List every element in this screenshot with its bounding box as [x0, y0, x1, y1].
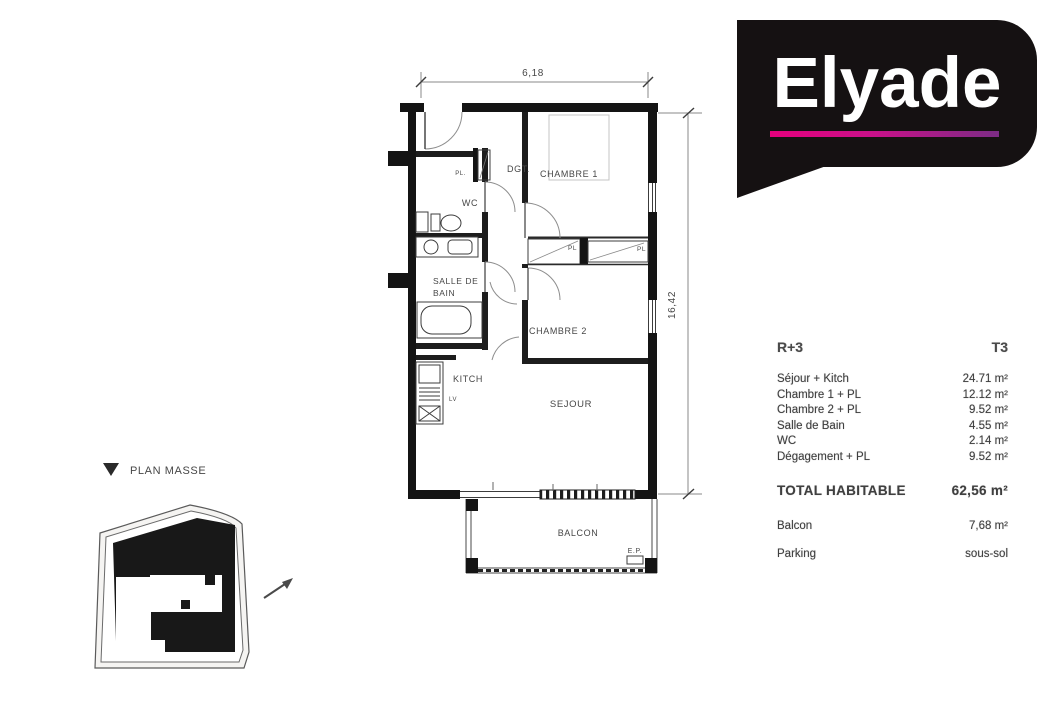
unit-type-label: T3	[992, 339, 1008, 355]
table-row: Chambre 2 + PL 9.52 m²	[777, 403, 1008, 419]
balcon-row: Balcon 7,68 m²	[777, 520, 1008, 532]
plan-masse-title: PLAN MASSE	[103, 463, 206, 477]
sejour-glass-door	[540, 490, 635, 499]
table-row: WC 2.14 m²	[777, 434, 1008, 450]
label-pl-right: PL	[637, 246, 646, 253]
summary-rows: Séjour + Kitch 24.71 m² Chambre 1 + PL 1…	[777, 372, 1008, 466]
room-label: Séjour + Kitch	[777, 372, 849, 388]
label-dgt: DGT.	[507, 164, 530, 174]
table-row: Salle de Bain 4.55 m²	[777, 419, 1008, 435]
label-chambre2: CHAMBRE 2	[529, 326, 587, 336]
sejour-window	[460, 492, 540, 498]
balcon-value: 7,68 m²	[969, 520, 1008, 532]
window-chambre1	[647, 183, 657, 212]
table-row: Chambre 1 + PL 12.12 m²	[777, 388, 1008, 404]
table-row: Dégagement + PL 9.52 m²	[777, 450, 1008, 466]
summary-header: R+3 T3	[777, 339, 1008, 355]
parking-value: sous-sol	[965, 548, 1008, 560]
label-wc: WC	[462, 198, 478, 208]
parking-label: Parking	[777, 548, 816, 560]
logo-underline	[770, 131, 999, 137]
room-label: Chambre 2 + PL	[777, 403, 861, 419]
window-chambre2	[647, 300, 657, 333]
room-label: Chambre 1 + PL	[777, 388, 861, 404]
door-leaves	[485, 182, 528, 300]
apartment-plan-page: 6,18 16,42 DGT. PL. CHAMBRE 1 WC SALLE D…	[0, 0, 1055, 702]
total-value: 62,56 m²	[952, 483, 1008, 498]
room-label: Dégagement + PL	[777, 450, 870, 466]
room-area: 12.12 m²	[963, 388, 1008, 404]
room-area: 4.55 m²	[969, 419, 1008, 435]
plan-masse-drawing	[95, 505, 249, 668]
label-ep: E.P.	[628, 548, 643, 555]
label-pl-entry: PL.	[455, 171, 466, 177]
room-area: 9.52 m²	[969, 450, 1008, 466]
kitchen-unit	[416, 362, 443, 424]
dim-height-label: 16,42	[667, 291, 678, 319]
plan-masse-label: PLAN MASSE	[130, 465, 206, 477]
wc-fixtures	[416, 212, 461, 232]
total-row: TOTAL HABITABLE 62,56 m²	[777, 483, 1008, 498]
triangle-marker-icon	[103, 463, 119, 476]
bathtub	[417, 302, 482, 338]
label-pl-left: PL	[568, 245, 577, 252]
label-chambre1: CHAMBRE 1	[540, 169, 598, 179]
parking-row: Parking sous-sol	[777, 548, 1008, 560]
total-label: TOTAL HABITABLE	[777, 483, 906, 498]
room-area: 9.52 m²	[969, 403, 1008, 419]
dim-width-label: 6,18	[522, 68, 544, 79]
room-label: WC	[777, 434, 796, 450]
balcon-label: Balcon	[777, 520, 812, 532]
room-label: Salle de Bain	[777, 419, 845, 435]
logo-wordmark: Elyade	[737, 22, 1037, 144]
room-area: 2.14 m²	[969, 434, 1008, 450]
room-area: 24.71 m²	[963, 372, 1008, 388]
label-lv: LV	[449, 397, 457, 403]
label-salle-de-bain-1: SALLE DE	[433, 276, 478, 286]
entrance-door	[424, 103, 462, 149]
label-sejour: SEJOUR	[550, 399, 592, 410]
dimension-right	[658, 108, 702, 499]
label-salle-de-bain-2: BAIN	[433, 288, 455, 298]
washbasin	[416, 237, 478, 257]
label-balcon: BALCON	[558, 528, 599, 538]
table-row: Séjour + Kitch 24.71 m²	[777, 372, 1008, 388]
bedroom-closets	[528, 238, 648, 266]
label-kitch: KITCH	[453, 374, 483, 384]
site-arrow-icon	[264, 578, 293, 598]
level-label: R+3	[777, 339, 803, 355]
